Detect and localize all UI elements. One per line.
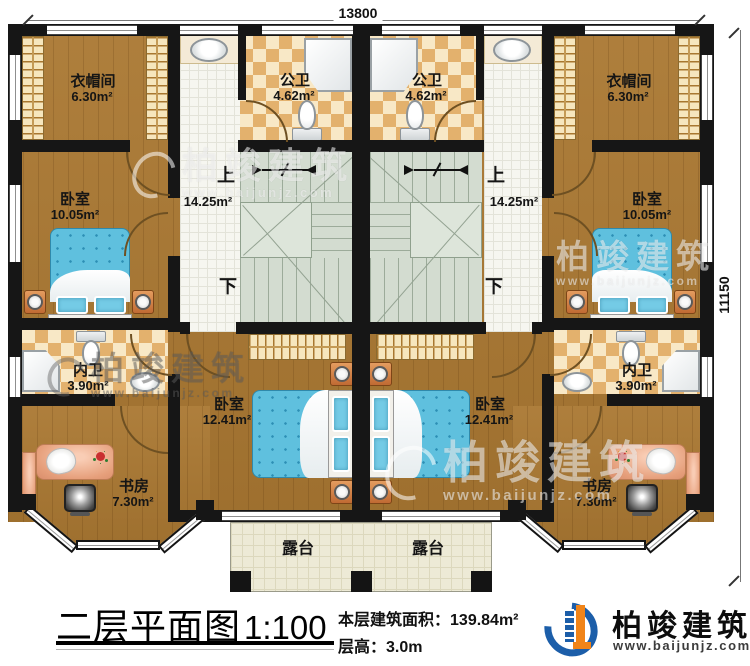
- nightstand-knob: [372, 366, 388, 382]
- nightstand: [566, 290, 588, 314]
- wall: [370, 322, 486, 334]
- stair-down-label: 下: [485, 278, 503, 297]
- window: [585, 25, 675, 35]
- wall: [532, 322, 542, 334]
- wall-center: [352, 24, 370, 510]
- room-area: 6.30m²: [71, 90, 112, 104]
- plant-icon: [96, 452, 105, 461]
- floor-area-info: 本层建筑面积：139.84m²: [338, 606, 519, 630]
- room-area: 3.90m²: [67, 379, 108, 393]
- window: [9, 55, 21, 120]
- nightstand: [330, 362, 354, 386]
- sink-basin: [130, 372, 160, 392]
- terrace-door: [222, 511, 340, 521]
- nightstand-knob: [677, 294, 693, 310]
- room-label: 卧室: [475, 397, 505, 413]
- nightstand: [132, 290, 154, 314]
- floor-plan-page: 衣帽间 6.30m² 衣帽间 6.30m² 公卫 4.62m² 公卫 4.62m…: [0, 0, 750, 666]
- wall: [592, 140, 700, 152]
- room-area: 3.90m²: [615, 379, 656, 393]
- dimension-line-right: [740, 30, 741, 582]
- stair-treads: [370, 152, 482, 202]
- wardrobe: [146, 36, 168, 140]
- stair-arrow-icon: [252, 165, 262, 175]
- room-label: 公卫: [412, 73, 442, 89]
- room-label: 卧室: [60, 192, 90, 208]
- stair-treads: [312, 202, 352, 258]
- room-label: 内卫: [73, 363, 103, 379]
- room-label: 公卫: [280, 73, 310, 89]
- logo-building-blue: [565, 609, 574, 642]
- floor-height-value: 3.0m: [386, 639, 422, 656]
- floor-height-info: 层高：3.0m: [338, 633, 422, 657]
- window: [9, 185, 21, 262]
- brand-logo-icon: [544, 598, 606, 660]
- room-label: 衣帽间: [606, 74, 651, 90]
- title-underline-thin: [56, 649, 334, 650]
- wardrobe: [22, 36, 44, 140]
- logo-building-base: [573, 642, 591, 649]
- stair-treads: [370, 258, 482, 332]
- stair-arrow-icon: [306, 165, 316, 175]
- wardrobe: [248, 334, 346, 360]
- wall-corner: [22, 494, 36, 510]
- room-area: 6.30m²: [607, 90, 648, 104]
- window: [484, 25, 542, 35]
- wardrobe: [554, 36, 576, 140]
- wall-corner: [686, 494, 700, 510]
- room-label: 书房: [582, 479, 612, 495]
- nightstand: [368, 362, 392, 386]
- floor-area-label: 本层建筑面积：: [338, 612, 450, 629]
- room-area: 4.62m²: [273, 89, 314, 103]
- stair-landing-left: [240, 202, 312, 258]
- nightstand-knob: [334, 484, 350, 500]
- room-area: 7.30m²: [575, 495, 616, 509]
- wardrobe: [376, 334, 474, 360]
- nightstand: [330, 480, 354, 504]
- stair-up-label: 上: [217, 167, 235, 186]
- brand-url: www.baijunjz.com: [613, 638, 750, 653]
- sink-basin: [562, 372, 592, 392]
- window: [9, 357, 21, 397]
- bed-pillow: [372, 436, 390, 472]
- stair-arrow-icon: [404, 165, 414, 175]
- room-area: 10.05m²: [623, 208, 671, 222]
- wall: [236, 322, 352, 334]
- room-label: 露台: [282, 542, 314, 559]
- sink-basin: [493, 38, 531, 62]
- bed-pillow: [332, 436, 350, 472]
- window: [47, 25, 137, 35]
- window: [262, 25, 353, 35]
- bed-pillow: [636, 296, 668, 314]
- wall: [542, 318, 714, 330]
- wall-corner: [508, 500, 526, 520]
- nightstand-knob: [135, 294, 151, 310]
- hall-area: 14.25m²: [490, 195, 538, 209]
- room-area: 4.62m²: [405, 89, 446, 103]
- room-area: 10.05m²: [51, 208, 99, 222]
- terrace-pillar: [351, 571, 372, 592]
- wall: [476, 34, 484, 100]
- hall-area: 14.25m²: [184, 195, 232, 209]
- computer-monitor: [626, 484, 658, 512]
- dimension-tick: [728, 27, 739, 38]
- terrace-pillar: [471, 571, 492, 592]
- wall: [168, 374, 180, 510]
- floor-height-label: 层高：: [338, 639, 386, 656]
- wall: [238, 34, 246, 100]
- bay-window: [562, 540, 646, 550]
- nightstand: [674, 290, 696, 314]
- nightstand-knob: [372, 484, 388, 500]
- terrace-pillar: [230, 571, 251, 592]
- toilet-bowl: [298, 100, 316, 130]
- toilet-bowl: [406, 100, 424, 130]
- monitor-base: [632, 512, 652, 516]
- nightstand: [24, 290, 46, 314]
- room-label: 内卫: [622, 363, 652, 379]
- room-label: 卧室: [632, 192, 662, 208]
- wall: [542, 374, 554, 510]
- nightstand-knob: [27, 294, 43, 310]
- wall: [22, 394, 115, 406]
- stair-up-label: 上: [487, 167, 505, 186]
- window: [701, 55, 713, 120]
- stair-treads: [240, 258, 352, 332]
- computer-monitor: [64, 484, 96, 512]
- terrace-door: [382, 511, 500, 521]
- bed-pillow: [56, 296, 88, 314]
- wall: [8, 318, 180, 330]
- bed-pillow: [94, 296, 126, 314]
- bed-pillow: [372, 396, 390, 432]
- dimension-right-value: 11150: [716, 271, 732, 318]
- bed-pillow: [598, 296, 630, 314]
- wardrobe: [678, 36, 700, 140]
- nightstand: [368, 480, 392, 504]
- room-label: 卧室: [214, 397, 244, 413]
- nightstand-knob: [334, 366, 350, 382]
- room-label: 书房: [119, 479, 149, 495]
- nightstand-knob: [569, 294, 585, 310]
- dimension-top-value: 13800: [334, 5, 383, 21]
- stair-arrow-icon: [458, 165, 468, 175]
- wall: [180, 322, 190, 334]
- window: [382, 25, 460, 35]
- room-label: 露台: [412, 542, 444, 559]
- plant-icon: [618, 452, 627, 461]
- wall: [607, 394, 700, 406]
- title-underline: [56, 641, 334, 645]
- window: [180, 25, 238, 35]
- room-area: 7.30m²: [112, 495, 153, 509]
- window: [701, 357, 713, 397]
- room-area: 12.41m²: [465, 413, 513, 427]
- bed-pillow: [332, 396, 350, 432]
- stair-down-label: 下: [219, 278, 237, 297]
- bay-window: [76, 540, 160, 550]
- wall: [22, 140, 130, 152]
- window: [701, 185, 713, 262]
- room-area: 12.41m²: [203, 413, 251, 427]
- logo-building-orange: [576, 605, 585, 642]
- monitor-base: [70, 512, 90, 516]
- room-label: 衣帽间: [70, 74, 115, 90]
- floor-area-value: 139.84m²: [450, 612, 519, 629]
- dimension-tick: [728, 575, 739, 586]
- stair-treads: [370, 202, 410, 258]
- sink-basin: [190, 38, 228, 62]
- wall-corner: [196, 500, 214, 520]
- stair-treads: [240, 152, 352, 202]
